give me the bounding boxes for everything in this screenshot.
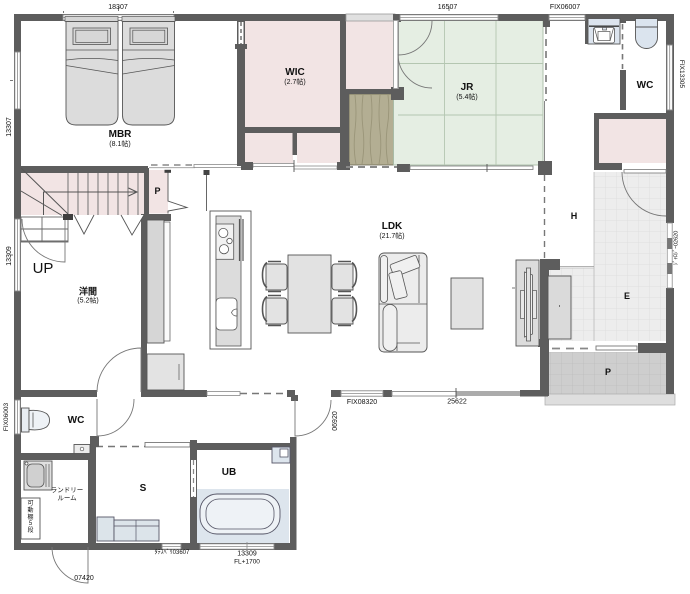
svg-text:段: 段	[27, 526, 33, 534]
svg-text:(8.1帖): (8.1帖)	[109, 139, 130, 148]
svg-text:S: S	[140, 483, 147, 494]
svg-text:E: E	[624, 291, 630, 301]
svg-text:ｼﾞｬﾛｼﾞｰ02620: ｼﾞｬﾛｼﾞｰ02620	[673, 231, 680, 266]
svg-text:WC: WC	[68, 415, 85, 426]
svg-text:16507: 16507	[438, 4, 458, 11]
svg-text:JR: JR	[461, 82, 475, 93]
svg-text:洋間: 洋間	[79, 286, 97, 297]
svg-text:07420: 07420	[74, 575, 94, 582]
svg-text:P: P	[605, 367, 611, 377]
svg-text:(2.7帖): (2.7帖)	[284, 77, 305, 86]
svg-text:可: 可	[27, 500, 33, 507]
svg-text:UB: UB	[222, 467, 236, 478]
svg-text:FIX06007: FIX06007	[550, 4, 580, 11]
svg-text:P: P	[154, 186, 160, 196]
svg-text:(5.2帖): (5.2帖)	[77, 296, 98, 305]
svg-text:06920: 06920	[332, 411, 339, 431]
svg-text:FIX06003: FIX06003	[3, 403, 10, 432]
svg-text:棚: 棚	[27, 513, 33, 521]
svg-text:WIC: WIC	[285, 67, 304, 78]
svg-text:WC: WC	[637, 80, 654, 91]
svg-text:13309: 13309	[6, 246, 13, 266]
svg-text:UP: UP	[33, 260, 54, 277]
svg-text:(21.7帖): (21.7帖)	[379, 231, 404, 240]
svg-text:13309: 13309	[237, 551, 257, 558]
svg-text:25622: 25622	[447, 399, 467, 406]
svg-text:ﾀﾃｽﾍﾞﾘ03607: ﾀﾃｽﾍﾞﾘ03607	[155, 549, 190, 556]
svg-text:13307: 13307	[6, 117, 13, 137]
svg-text:FIX08320: FIX08320	[347, 399, 377, 406]
svg-text:動: 動	[27, 506, 33, 514]
svg-text:FL+1700: FL+1700	[234, 559, 260, 566]
svg-text:18307: 18307	[108, 4, 128, 11]
svg-text:ルーム: ルーム	[57, 494, 77, 502]
svg-text:ランドリー: ランドリー	[51, 486, 84, 494]
svg-text:FIX13305: FIX13305	[678, 60, 685, 89]
svg-text:MBR: MBR	[109, 129, 133, 140]
svg-text:(5.4帖): (5.4帖)	[456, 92, 477, 101]
svg-text:LDK: LDK	[382, 221, 403, 232]
svg-text:H: H	[571, 211, 578, 221]
